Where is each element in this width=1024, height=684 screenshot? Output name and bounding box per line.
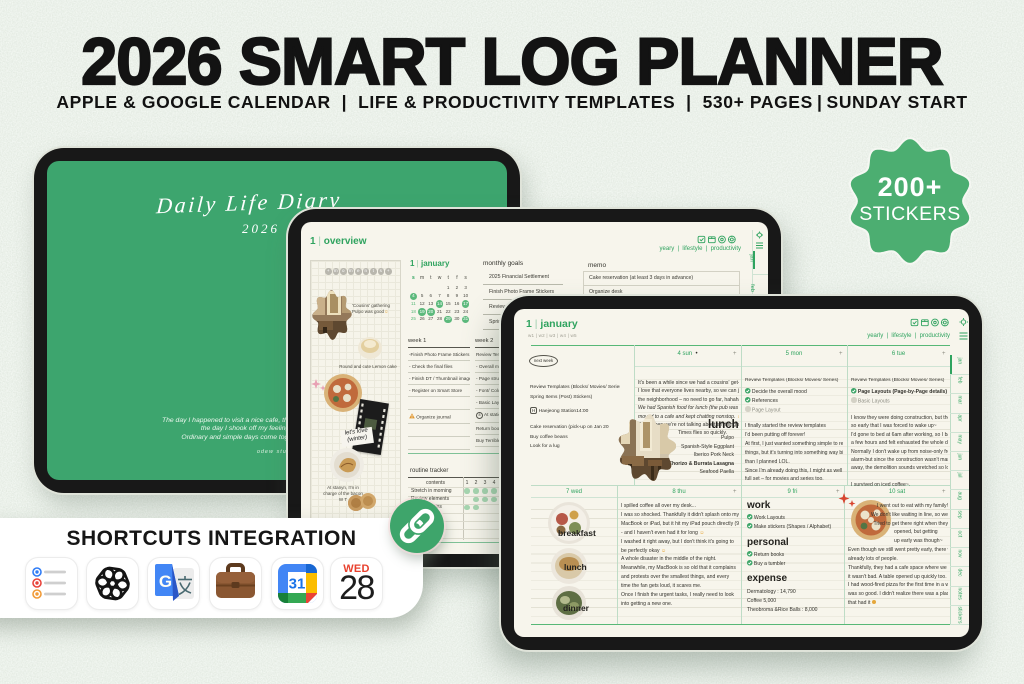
svg-text:STICKERS: STICKERS [859,203,961,225]
svg-text:G: G [159,572,172,591]
svg-text:31: 31 [289,576,306,593]
svg-text:200+: 200+ [878,172,943,202]
